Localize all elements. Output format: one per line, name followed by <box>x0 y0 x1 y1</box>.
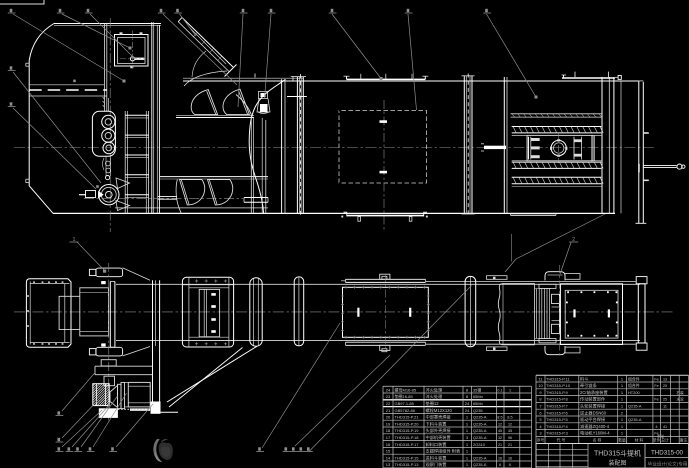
svg-text:料斗: 料斗 <box>580 375 588 382</box>
svg-text:96: 96 <box>508 436 512 440</box>
svg-text:45: 45 <box>508 429 512 433</box>
svg-text:1: 1 <box>509 388 511 392</box>
svg-text:THD315-P.8: THD315-P.8 <box>546 397 568 402</box>
svg-text:0.1: 0.1 <box>497 388 502 392</box>
svg-text:65Mn: 65Mn <box>473 401 483 406</box>
svg-text:THD315-P.20: THD315-P.20 <box>395 421 420 426</box>
svg-text:THD315-P.21: THD315-P.21 <box>395 415 420 420</box>
svg-text:名 称: 名 称 <box>593 437 602 442</box>
svg-text:25: 25 <box>663 398 667 402</box>
svg-text:减速器ZQ400-4: 减速器ZQ400-4 <box>580 423 610 430</box>
svg-text:17: 17 <box>386 435 391 440</box>
svg-text:序号: 序号 <box>537 437 545 442</box>
svg-text:HT200: HT200 <box>628 390 641 395</box>
svg-text:16: 16 <box>386 442 391 447</box>
svg-text:材 料: 材 料 <box>635 437 644 442</box>
svg-text:Q235-A: Q235-A <box>473 435 487 440</box>
svg-text:32: 32 <box>498 436 502 440</box>
svg-text:24: 24 <box>465 401 470 406</box>
svg-text:组合件: 组合件 <box>628 383 640 388</box>
svg-text:头部外壳焊接: 头部外壳焊接 <box>426 427 452 434</box>
svg-text:Q235-A: Q235-A <box>473 415 487 420</box>
svg-text:垫圈12: 垫圈12 <box>426 400 440 407</box>
svg-text:淬火处理: 淬火处理 <box>426 393 444 400</box>
svg-text:THD315-P.15: THD315-P.15 <box>395 455 420 460</box>
svg-text:THD315-P.9: THD315-P.9 <box>546 390 568 395</box>
svg-text:数量: 数量 <box>618 437 626 442</box>
svg-text:螺母M16-85: 螺母M16-85 <box>395 386 417 392</box>
svg-text:THD315-P.6: THD315-P.6 <box>546 410 568 415</box>
svg-text:19: 19 <box>386 421 391 426</box>
svg-text:中部机壳装置: 中部机壳装置 <box>426 434 451 441</box>
svg-text:Q235-A: Q235-A <box>628 404 642 409</box>
svg-text:22: 22 <box>386 401 391 406</box>
svg-text:15: 15 <box>386 449 391 454</box>
svg-text:8.5: 8.5 <box>507 416 512 420</box>
svg-text:THD315-P.3: THD315-P.3 <box>546 431 568 436</box>
svg-text:进料斗装置: 进料斗装置 <box>426 454 447 461</box>
svg-text:传动装置部件: 传动装置部件 <box>580 396 605 403</box>
svg-text:24: 24 <box>386 387 391 392</box>
svg-text:电动机Y160M-4: 电动机Y160M-4 <box>580 430 610 437</box>
svg-text:THD315-P.19: THD315-P.19 <box>395 428 420 433</box>
svg-text:Q235-A: Q235-A <box>473 462 487 467</box>
svg-text:Q235: Q235 <box>473 408 483 413</box>
svg-text:右装: 右装 <box>676 390 684 395</box>
svg-text:Q235-A: Q235-A <box>473 455 487 460</box>
svg-text:THD315-00: THD315-00 <box>651 450 684 457</box>
svg-text:21: 21 <box>508 443 512 447</box>
svg-text:THD315-P.13: THD315-P.13 <box>395 462 420 467</box>
svg-text:24: 24 <box>465 408 470 413</box>
svg-text:THD315-P.10: THD315-P.10 <box>546 383 571 388</box>
svg-text:14: 14 <box>386 455 391 460</box>
svg-text:Fe: Fe <box>654 377 658 381</box>
svg-text:THD315-P.18: THD315-P.18 <box>395 435 420 440</box>
svg-text:41: 41 <box>663 425 667 429</box>
svg-text:Fe: Fe <box>654 398 658 402</box>
svg-text:6: 6 <box>509 463 511 467</box>
svg-text:牵引链条: 牵引链条 <box>580 382 598 389</box>
svg-text:Fe: Fe <box>654 384 658 388</box>
svg-text:装配图: 装配图 <box>608 459 626 467</box>
svg-text:组合件: 组合件 <box>628 376 640 381</box>
svg-text:下料斗装置: 下料斗装置 <box>426 420 447 427</box>
svg-text:Q235-A: Q235-A <box>473 421 487 426</box>
svg-text:THD315-P.7: THD315-P.7 <box>546 404 568 409</box>
svg-text:23: 23 <box>386 394 391 399</box>
svg-text:支腿焊接组件 附表: 支腿焊接组件 附表 <box>426 448 461 455</box>
svg-text:ZG310: ZG310 <box>473 442 486 447</box>
svg-text:8.5: 8.5 <box>497 416 502 420</box>
svg-text:观察门装置: 观察门装置 <box>426 461 447 468</box>
svg-text:卸料口装置: 卸料口装置 <box>426 441 447 448</box>
svg-text:13: 13 <box>663 377 667 381</box>
svg-text:13: 13 <box>386 462 391 467</box>
svg-text:65Mn: 65Mn <box>473 394 483 399</box>
svg-text:THD315-P.4: THD315-P.4 <box>546 424 568 429</box>
svg-text:10: 10 <box>538 383 543 388</box>
svg-text:驱动平台焊接: 驱动平台焊接 <box>580 416 606 423</box>
svg-text:垫圈16-85: 垫圈16-85 <box>395 393 414 399</box>
svg-text:4: 4 <box>655 425 657 429</box>
svg-text:备注: 备注 <box>680 437 688 442</box>
svg-text:THD315斗提机: THD315斗提机 <box>594 449 641 458</box>
svg-text:12: 12 <box>508 422 512 426</box>
svg-text:THD315-P.5: THD315-P.5 <box>546 417 568 422</box>
svg-text:逆止器DSN60: 逆止器DSN60 <box>580 409 607 416</box>
svg-text:18: 18 <box>386 428 391 433</box>
svg-text:21: 21 <box>386 408 391 413</box>
svg-text:20: 20 <box>386 415 391 420</box>
svg-text:2Cr轴承座装置: 2Cr轴承座装置 <box>580 389 608 396</box>
svg-text:25: 25 <box>663 384 667 388</box>
svg-text:Q235-A: Q235-A <box>628 417 642 422</box>
svg-text:螺栓M12X120: 螺栓M12X120 <box>426 407 453 414</box>
svg-text:12: 12 <box>498 422 502 426</box>
svg-text:11: 11 <box>663 405 667 409</box>
svg-text:GB5782-86: GB5782-86 <box>395 408 416 413</box>
svg-text:6: 6 <box>499 463 501 467</box>
svg-text:Q235-A: Q235-A <box>473 428 487 433</box>
svg-text:THD315-P.17: THD315-P.17 <box>395 442 420 447</box>
svg-text:16: 16 <box>508 456 512 460</box>
svg-text:35钢: 35钢 <box>473 387 481 392</box>
svg-text:16: 16 <box>498 456 502 460</box>
svg-text:毕业设计(论文)专用: 毕业设计(论文)专用 <box>648 461 688 468</box>
svg-text:代 号: 代 号 <box>557 437 566 442</box>
svg-text:中部罩壳焊接: 中部罩壳焊接 <box>426 414 452 421</box>
svg-text:水泥: 水泥 <box>676 397 684 402</box>
svg-text:头轮装置焊接: 头轮装置焊接 <box>580 403 606 410</box>
svg-text:GB97.1-85: GB97.1-85 <box>395 401 415 406</box>
svg-text:THD315-P.11: THD315-P.11 <box>546 376 570 381</box>
svg-text:45: 45 <box>498 429 502 433</box>
svg-text:淬火处理: 淬火处理 <box>426 386 444 393</box>
svg-text:重 量: 重 量 <box>657 434 665 439</box>
svg-text:21: 21 <box>498 443 502 447</box>
